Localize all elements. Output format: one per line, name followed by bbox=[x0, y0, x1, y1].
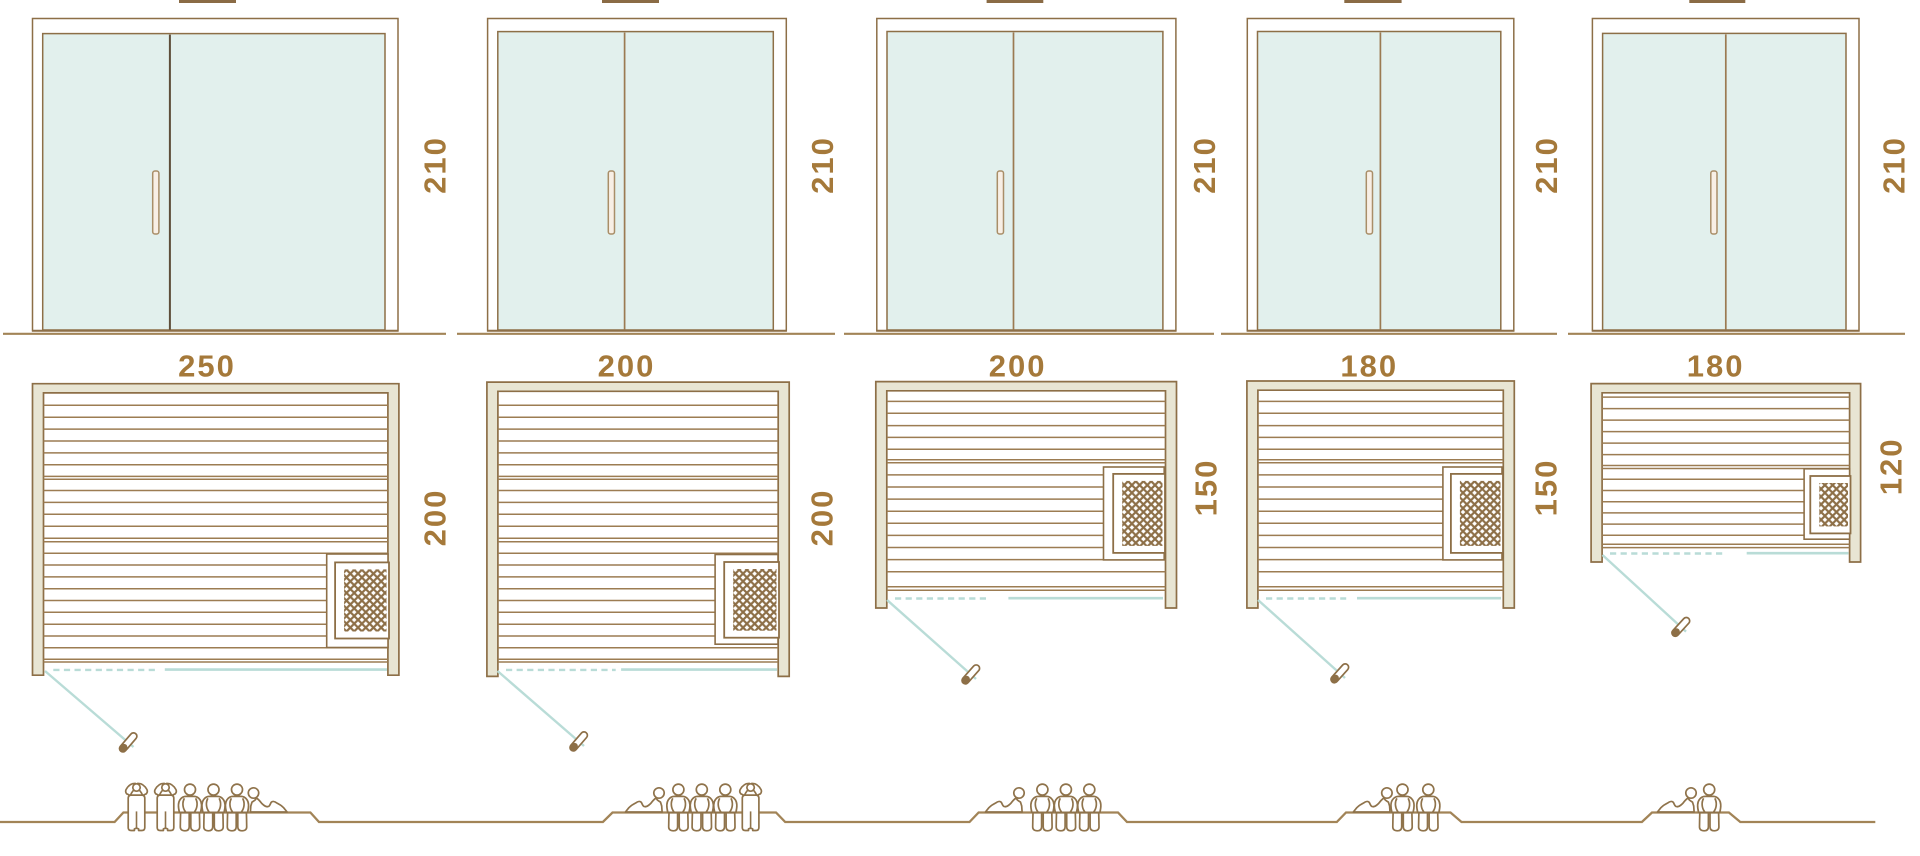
svg-text:150: 150 bbox=[1529, 459, 1564, 517]
svg-text:180: 180 bbox=[1340, 348, 1398, 383]
svg-text:210: 210 bbox=[1187, 136, 1222, 194]
svg-text:200: 200 bbox=[598, 348, 656, 383]
svg-text:250: 250 bbox=[178, 348, 236, 383]
svg-text:150: 150 bbox=[1189, 459, 1224, 517]
svg-text:210: 210 bbox=[417, 136, 452, 194]
svg-text:200: 200 bbox=[804, 489, 839, 547]
svg-text:200: 200 bbox=[989, 348, 1047, 383]
svg-text:210: 210 bbox=[805, 136, 840, 194]
svg-text:210: 210 bbox=[1529, 136, 1564, 194]
svg-text:200: 200 bbox=[418, 489, 453, 547]
svg-text:210: 210 bbox=[1877, 136, 1912, 194]
svg-text:120: 120 bbox=[1873, 438, 1908, 496]
svg-text:180: 180 bbox=[1687, 348, 1745, 383]
